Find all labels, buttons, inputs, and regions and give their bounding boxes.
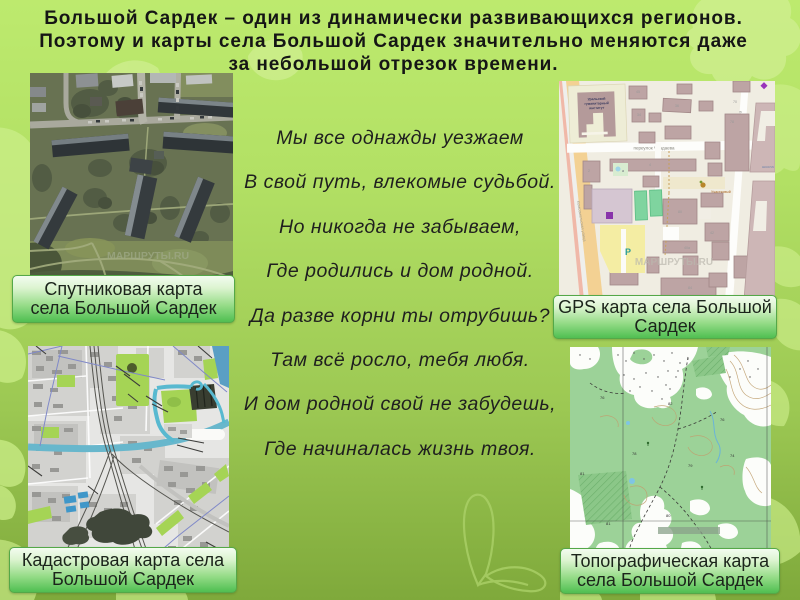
svg-text:82: 82 <box>668 401 673 406</box>
svg-text:36: 36 <box>675 104 679 108</box>
svg-text:45: 45 <box>636 90 640 94</box>
svg-text:81: 81 <box>580 471 585 476</box>
svg-text:79: 79 <box>688 463 693 468</box>
svg-text:78: 78 <box>632 451 637 456</box>
svg-text:74: 74 <box>730 453 735 458</box>
svg-text:80: 80 <box>666 513 671 518</box>
svg-text:институт: институт <box>589 106 605 111</box>
svg-text:76: 76 <box>600 395 605 400</box>
svg-text:81: 81 <box>606 521 611 526</box>
svg-text:76: 76 <box>720 417 725 422</box>
svg-text:70: 70 <box>733 100 737 104</box>
